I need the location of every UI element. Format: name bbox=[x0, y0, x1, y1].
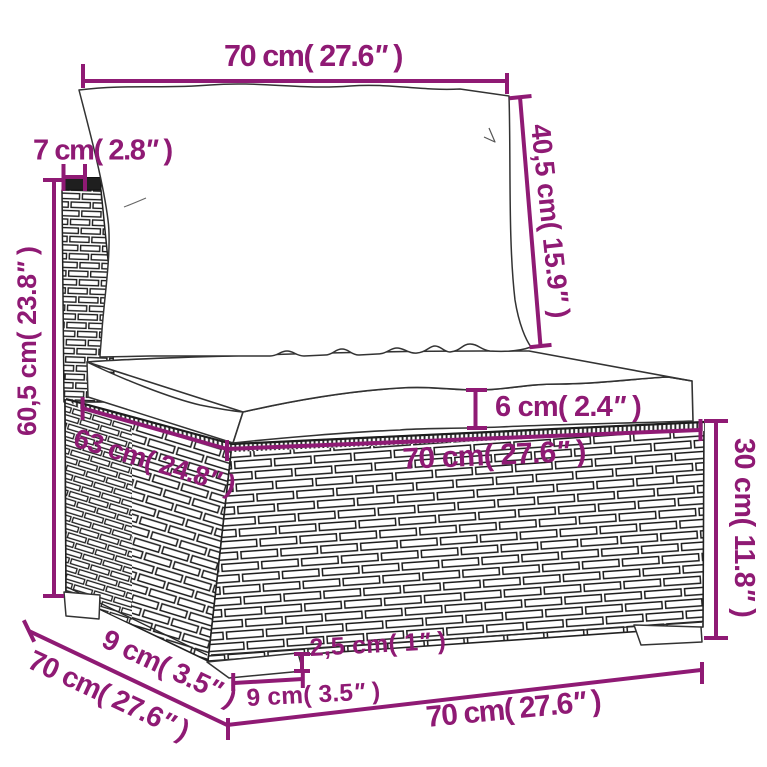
svg-text:40,5 cm( 15.9" ): 40,5 cm( 15.9" ) bbox=[525, 122, 576, 319]
svg-text:2,5 cm( 1" ): 2,5 cm( 1" ) bbox=[309, 627, 447, 662]
svg-text:70 cm( 27.6" ): 70 cm( 27.6" ) bbox=[425, 684, 603, 734]
svg-text:70 cm( 27.6" ): 70 cm( 27.6" ) bbox=[224, 39, 402, 73]
svg-text:9 cm( 3.5" ): 9 cm( 3.5" ) bbox=[246, 678, 381, 712]
svg-text:7 cm( 2.8" ): 7 cm( 2.8" ) bbox=[33, 135, 173, 167]
svg-text:30 cm( 11.8" ): 30 cm( 11.8" ) bbox=[728, 438, 760, 617]
svg-text:6 cm( 2.4" ): 6 cm( 2.4" ) bbox=[495, 391, 641, 423]
svg-text:60,5 cm( 23.8" ): 60,5 cm( 23.8" ) bbox=[12, 246, 42, 436]
